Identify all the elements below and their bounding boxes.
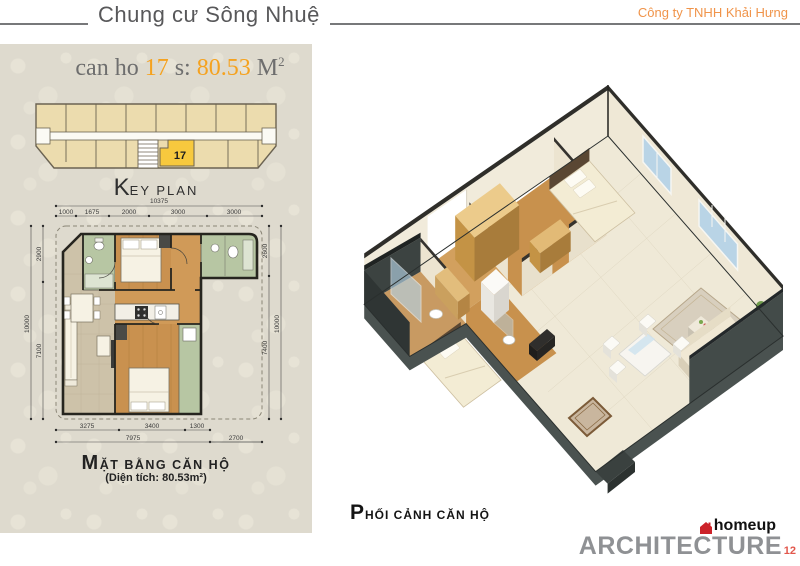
bed-2 [129, 368, 169, 412]
dim-bottom-3: 1300 [190, 423, 205, 430]
page-number: 12 [784, 545, 796, 557]
unit-area-sup: 2 [278, 54, 285, 69]
keyplan-left-core [36, 128, 50, 144]
homeup-logo-icon [699, 521, 713, 535]
dim-top-4: 3000 [171, 209, 186, 216]
company-name: Công ty TNHH Khải Hưng [638, 5, 788, 20]
dim-top-3: 2000 [122, 209, 137, 216]
homeup-logo-text: homeup [714, 517, 776, 535]
dim-bottom-1: 3275 [80, 423, 95, 430]
dim-top-1: 1000 [59, 209, 74, 216]
wing-toilet [430, 310, 443, 319]
floorplan-area-note: (Diện tích: 80.53m²) [0, 472, 312, 484]
unit-title: can ho 17 s: 80.53 M2 [0, 54, 312, 82]
keyplan-right-core [262, 128, 276, 144]
unit-number: 17 [145, 55, 169, 81]
dim-left-total: 10000 [24, 315, 31, 333]
dim-right-1: 2600 [262, 243, 269, 258]
bed-1 [121, 238, 161, 282]
toilet-3d [503, 336, 515, 345]
homeup-logo: homeup [699, 517, 776, 535]
unit-area: 80.53 [197, 55, 251, 81]
bedroom-1-closet [159, 234, 171, 248]
floorplan-drawing: 10375 1000 1675 2000 3000 3000 10000 290… [11, 194, 301, 449]
dim-bottom-right: 2700 [229, 435, 244, 442]
unit-title-s: s: [169, 55, 197, 81]
keyplan-unit-17-label: 17 [174, 150, 186, 162]
dim-right-total: 10000 [274, 315, 281, 333]
dim-top-2: 1675 [85, 209, 100, 216]
washing-machine [183, 328, 196, 341]
slide-page: Chung cư Sông Nhuệ Công ty TNHH Khải Hưn… [0, 0, 800, 566]
coffee-table [97, 336, 110, 356]
keyplan-stairs [138, 140, 158, 168]
keyplan-drawing: 17 [30, 98, 282, 176]
dim-bottom-2: 3400 [145, 423, 160, 430]
left-panel: can ho 17 s: 80.53 M2 [0, 44, 312, 533]
render-3d [333, 82, 793, 502]
unit-title-prefix: can ho [75, 55, 144, 81]
architecture-label: ARCHITECTURE [579, 532, 782, 561]
page-title: Chung cư Sông Nhuệ [88, 2, 330, 28]
keyplan-corridor [42, 132, 270, 140]
render-label: PHỐI CẢNH CĂN HỘ [350, 501, 490, 525]
dim-left-2: 7100 [36, 343, 43, 358]
dim-top-5: 3000 [227, 209, 242, 216]
dim-left-1: 2900 [36, 246, 43, 261]
dim-bottom-sub: 7975 [126, 435, 141, 442]
unit-area-unit: M [251, 55, 278, 81]
dim-right-2: 7400 [262, 340, 269, 355]
bedroom-2-closet [115, 324, 127, 340]
dim-top-total: 10375 [150, 198, 168, 205]
